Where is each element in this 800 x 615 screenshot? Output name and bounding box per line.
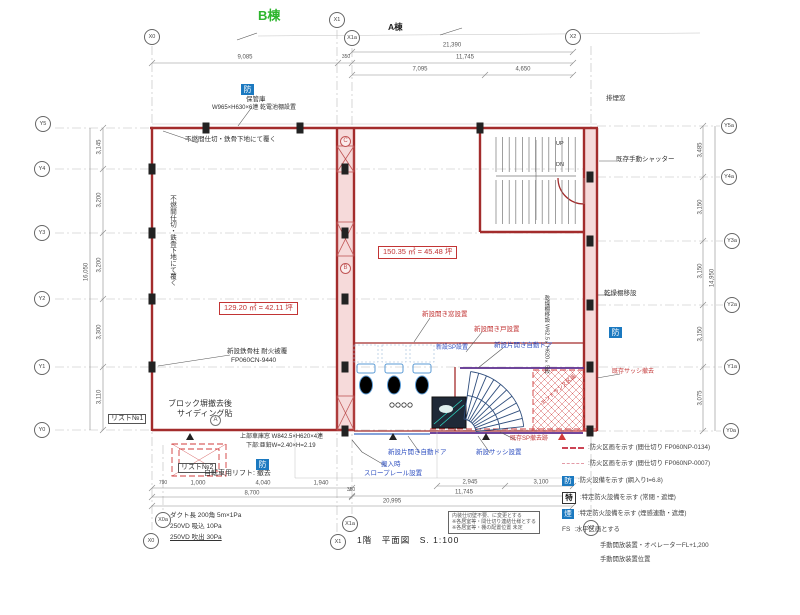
- dimension-label: 3,150: [698, 199, 705, 214]
- dimension-label: 3,075: [698, 390, 705, 405]
- grid-bubble: X1: [330, 534, 346, 550]
- legend-row: 煙 : 特定防火設備を示す (煙感連動・遮煙): [562, 509, 686, 519]
- dimension-label: 3,150: [698, 326, 705, 341]
- grid-bubble: X1: [329, 12, 345, 28]
- grid-bubble: X2: [565, 29, 581, 45]
- grid-bubble: Y2: [34, 291, 50, 307]
- annotation: スロープレール設置: [364, 470, 422, 477]
- legend-symbol: [562, 463, 584, 464]
- grid-lines: [55, 30, 723, 532]
- straight-stair: [496, 137, 575, 224]
- grid-bubble: Y4a: [721, 169, 737, 185]
- annotation: 下部:亜鉛W=2.40×H=2.19: [246, 443, 316, 450]
- annotation: 自転車用リフト: 撤去: [204, 470, 271, 478]
- grid-bubble: Y5a: [721, 118, 737, 134]
- dimension-label: 3,100: [533, 480, 548, 487]
- shaft-letter: C: [340, 136, 351, 147]
- dimension-label: 3,150: [698, 263, 705, 278]
- grid-bubble: X0: [143, 533, 159, 549]
- legend-label: 手動開放装置・オペレーターFL+1,200: [600, 542, 709, 549]
- annotation: 新設開き戸設置: [474, 326, 520, 333]
- grid-bubble: Y5: [35, 116, 51, 132]
- fire-badge: 防: [256, 459, 269, 470]
- annotation: 新設SP設置: [436, 345, 468, 352]
- legend-symbol: [562, 447, 584, 449]
- legend-row: : 防火区画を示す (間仕切り FP060NP-0007): [562, 460, 710, 467]
- note-box: 内装仕切壁不要、に変更とする※各居室等・間仕切り連結仕様とする※各居室等・棚の配…: [448, 511, 540, 534]
- drawing-title: 1階 平面図 S. 1:100: [357, 536, 459, 546]
- legend-symbol: 煙: [562, 509, 574, 519]
- annotation: 不燃間仕切・鉄骨下地にて覆く: [185, 136, 276, 143]
- dimension-label: 1,940: [313, 481, 328, 488]
- legend-row: 防 : 防火設備を示す (網入りt=6.8): [562, 476, 663, 486]
- dimension-label: 16,050: [84, 263, 91, 281]
- dimension-label: 4,650: [515, 67, 530, 74]
- walls: [150, 127, 598, 431]
- grid-bubble: Y3a: [724, 233, 740, 249]
- legend-row: FS : 水平区画とする: [562, 526, 620, 533]
- legend-label: 手動開放装置位置: [600, 556, 650, 563]
- legend-row: 特 : 特定防火設備を示す (常閉・遮煙): [562, 492, 676, 504]
- annotation: W965×H630×6連 乾電池棚設置: [212, 105, 296, 112]
- dimension-label: 1,000: [190, 481, 205, 488]
- dimension-label: 350: [342, 55, 350, 61]
- shaft-letter: B: [340, 263, 351, 274]
- legend-label: 防火区画を示す (間仕切り FP060NP-0007): [590, 460, 710, 467]
- annotation: FP060CN-9440: [231, 357, 276, 364]
- annotation: 不燃間仕切・鉄骨下地にて覆く: [168, 195, 175, 286]
- dimension-label: 9,085: [237, 55, 252, 62]
- grid-bubble: X0a: [155, 512, 171, 528]
- legend-symbol: 特: [562, 492, 576, 504]
- dimension-label: 20,995: [383, 499, 401, 506]
- grid-bubble: Y1a: [724, 359, 740, 375]
- legend-label: 水平区画とする: [576, 526, 620, 533]
- grid-bubble: Y2a: [724, 297, 740, 313]
- legend-symbol: 防: [562, 476, 574, 486]
- grid-bubble: X0: [144, 29, 160, 45]
- shaft-letter: A: [210, 415, 221, 426]
- dimension-label: 11,745: [456, 55, 474, 62]
- area-label: 150.35 ㎡ = 45.48 坪: [378, 246, 457, 259]
- dimension-label: 3,300: [97, 324, 104, 339]
- annotation: 250VD 吸込 10Pa: [170, 523, 222, 530]
- annotation: UP: [556, 141, 564, 147]
- legend-row: 手動開放装置・オペレーターFL+1,200: [600, 542, 709, 549]
- annotation: 新設サッシ設置: [476, 449, 522, 456]
- annotation: 新設開き窓設置: [422, 311, 468, 318]
- annotation: DN: [556, 162, 564, 168]
- legend-label: 防火設備を示す (網入りt=6.8): [580, 477, 663, 484]
- annotation: 既存SP撤去跡: [510, 436, 548, 443]
- plan-drawing-svg: [0, 0, 800, 615]
- equipment-box: [432, 397, 466, 428]
- legend-label: 防火区画を示す (間仕切り FP060NP-0134): [590, 444, 710, 451]
- dimension-label: 3,200: [97, 257, 104, 272]
- dimension-label: 3,200: [97, 192, 104, 207]
- legend-label: 特定防火設備を示す (常閉・遮煙): [582, 494, 676, 501]
- legend-row: 手動開放装置位置: [600, 556, 650, 563]
- floorplan-canvas: B棟 A棟 1階 平面図 S. 1:100 X0X1X1aX2Y5Y4Y3Y2Y…: [0, 0, 800, 615]
- annotation: ブロック塀撤去後: [168, 399, 232, 408]
- grid-bubble: Y3: [34, 225, 50, 241]
- annotation: 既存手動シャッター: [616, 156, 675, 163]
- dimension-label: 7,095: [412, 67, 427, 74]
- dimension-label: 3,485: [698, 142, 705, 157]
- annotation: サイディング貼: [177, 409, 232, 418]
- grid-bubble: Y1: [34, 359, 50, 375]
- annotation: 排煙窓: [606, 95, 626, 102]
- dimension-label: 4,040: [255, 481, 270, 488]
- dimension-label: 14,950: [710, 269, 717, 287]
- dimension-label: 2,945: [462, 480, 477, 487]
- annotation: 既存サッシ撤去: [612, 369, 654, 376]
- annotation: 上部車庫窓 W842.5×H620×4連: [240, 434, 323, 441]
- area-label: 129.20 ㎡ = 42.11 坪: [219, 302, 298, 315]
- annotation: 搬入時: [381, 461, 401, 468]
- spiral-stair: [464, 372, 524, 432]
- legend-symbol: FS: [562, 526, 570, 533]
- legend-row: : 防火区画を示す (間仕切り FP060NP-0134): [562, 444, 710, 451]
- grid-bubble: Y0: [34, 422, 50, 438]
- annotation: 乾燥棚移設: [604, 290, 637, 297]
- a-wing-label: A棟: [388, 23, 403, 33]
- fire-badge: 防: [241, 84, 254, 95]
- annotation: 保管庫: [246, 96, 266, 103]
- annotation: 新設片開き自動ドア: [388, 449, 447, 456]
- dimension-label: 11,745: [455, 490, 473, 497]
- grid-bubble: Y4: [34, 161, 50, 177]
- annotation: ダクト長 200角 5m×1Pa: [170, 512, 241, 519]
- toilet-fixtures: [354, 345, 434, 394]
- legend-label: 特定防火設備を示す (煙感連動・遮煙): [580, 510, 687, 517]
- annotation: 新設片開き自動ドア: [494, 342, 553, 349]
- dimension-label: 350: [347, 488, 355, 494]
- annotation: リスト№1: [108, 414, 146, 424]
- grid-bubble: Y0a: [723, 423, 739, 439]
- note-line: ※各居室等・棚の配置位置 未定: [452, 526, 536, 532]
- annotation: 250VD 吹出 30Pa: [170, 534, 222, 541]
- dimension-label: 3,145: [97, 139, 104, 154]
- dimension-label: 21,390: [443, 43, 461, 50]
- dimension-lines: [90, 52, 715, 506]
- annotation: 乾燥棚移設 W62.5×H620×5段: [543, 295, 549, 374]
- fire-badge: 防: [609, 327, 622, 338]
- dimension-label: 790: [159, 481, 167, 487]
- grid-bubble: X1a: [344, 30, 360, 46]
- b-wing-label: B棟: [258, 9, 280, 24]
- washbasin-circles: [390, 403, 412, 407]
- dimension-label: 3,110: [97, 390, 104, 405]
- annotation: 新設鉄骨柱 耐火被覆: [227, 348, 287, 355]
- dimension-label: 8,700: [244, 491, 259, 498]
- grid-bubble: X1a: [342, 516, 358, 532]
